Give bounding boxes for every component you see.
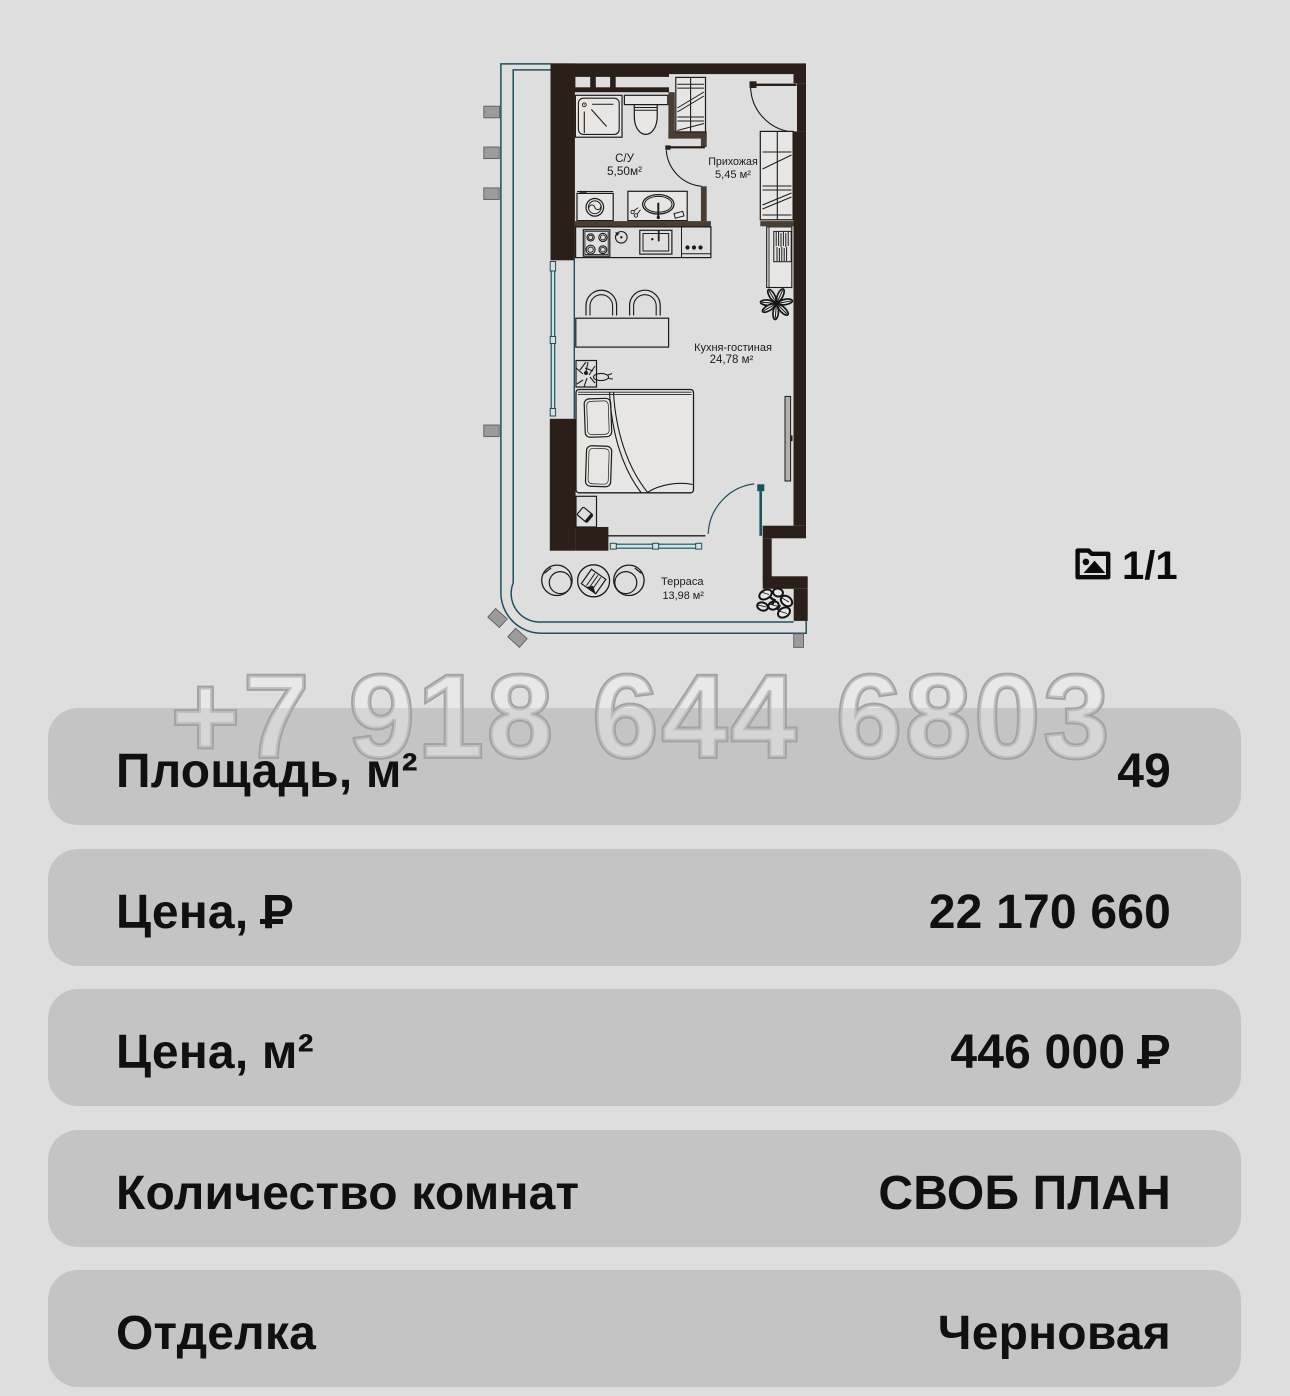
svg-text:+7 918 644 6803: +7 918 644 6803: [171, 651, 1113, 783]
